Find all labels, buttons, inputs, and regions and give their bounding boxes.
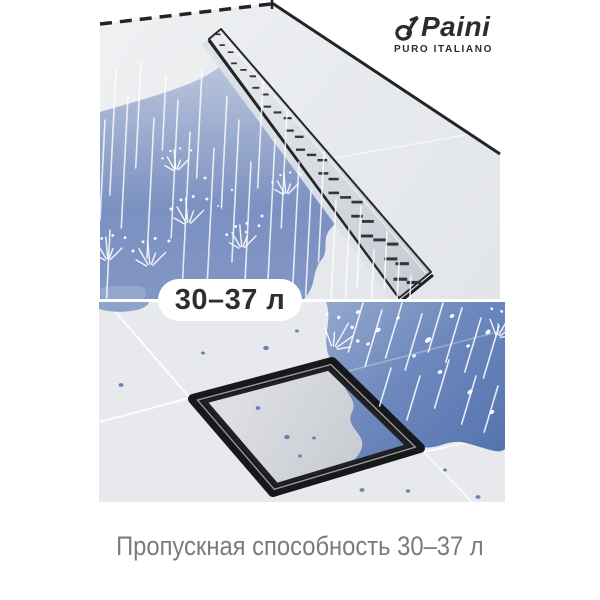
brand-name: Paini (421, 13, 490, 41)
paini-brand-mark-icon (394, 14, 419, 41)
capacity-badge: 30–37 л (158, 279, 302, 321)
product-infographic: Paini PURO ITALIANO 30–37 л Пропускная с… (0, 0, 600, 600)
capacity-badge-label: 30–37 л (175, 284, 286, 317)
bottom-illustration-square-drain-scene (99, 302, 519, 502)
brand-logo: Paini PURO ITALIANO (394, 13, 510, 55)
caption-text: Пропускная способность 30–37 л (116, 531, 484, 562)
caption: Пропускная способность 30–37 л (0, 531, 600, 562)
brand-tagline: PURO ITALIANO (394, 44, 510, 55)
